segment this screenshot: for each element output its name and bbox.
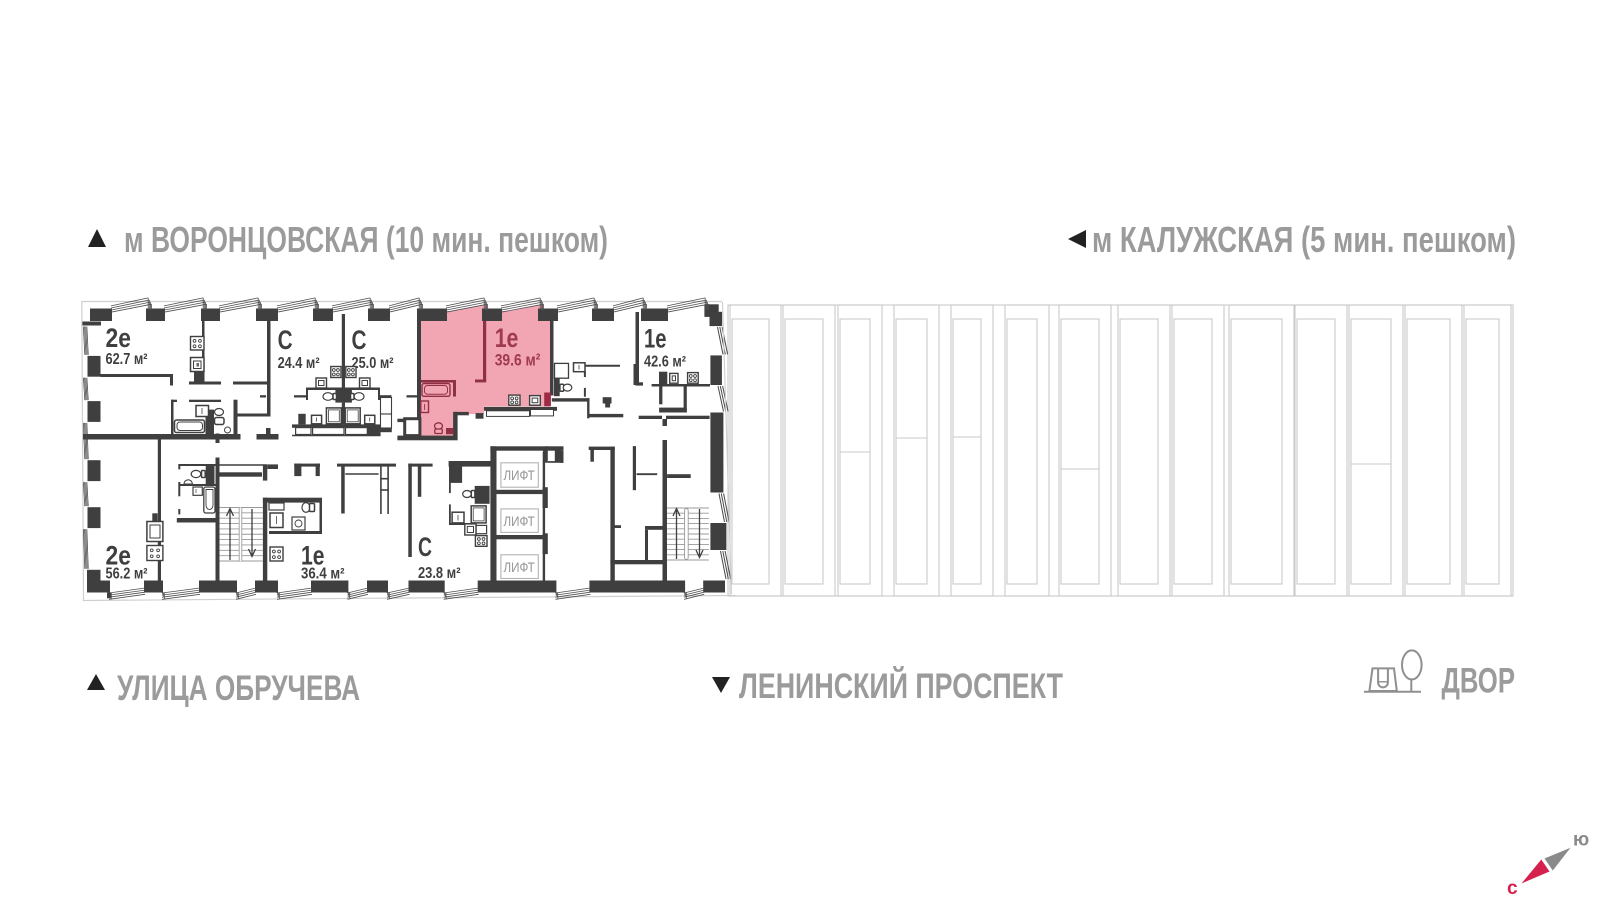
- svg-text:24.4 м²: 24.4 м²: [278, 355, 320, 372]
- svg-text:с: с: [1507, 878, 1518, 899]
- svg-text:2е: 2е: [106, 323, 131, 353]
- svg-text:1е: 1е: [495, 323, 519, 353]
- svg-text:36.4 м²: 36.4 м²: [301, 566, 345, 583]
- svg-text:С: С: [418, 532, 432, 562]
- svg-text:39.6 м²: 39.6 м²: [495, 352, 541, 370]
- svg-text:С: С: [278, 325, 293, 355]
- svg-text:ЛИФТ: ЛИФТ: [504, 514, 535, 529]
- svg-text:42.6 м²: 42.6 м²: [644, 354, 686, 371]
- svg-text:23.8 м²: 23.8 м²: [418, 565, 461, 582]
- svg-text:ЛЕНИНСКИЙ ПРОСПЕКТ: ЛЕНИНСКИЙ ПРОСПЕКТ: [739, 666, 1063, 706]
- svg-text:м КАЛУЖСКАЯ (5 мин. пешком): м КАЛУЖСКАЯ (5 мин. пешком): [1092, 219, 1516, 260]
- svg-text:С: С: [352, 325, 367, 355]
- svg-text:1е: 1е: [644, 324, 667, 354]
- svg-text:м ВОРОНЦОВСКАЯ (10 мин. пешко: м ВОРОНЦОВСКАЯ (10 мин. пешком): [124, 219, 608, 260]
- svg-text:56.2 м²: 56.2 м²: [106, 566, 148, 583]
- svg-text:25.0 м²: 25.0 м²: [352, 355, 394, 372]
- svg-text:ЛИФТ: ЛИФТ: [504, 560, 535, 575]
- svg-text:ДВОР: ДВОР: [1442, 662, 1516, 701]
- svg-text:ю: ю: [1573, 830, 1589, 851]
- svg-text:ЛИФТ: ЛИФТ: [504, 468, 535, 483]
- svg-text:62.7 м²: 62.7 м²: [106, 351, 148, 368]
- svg-text:УЛИЦА ОБРУЧЕВА: УЛИЦА ОБРУЧЕВА: [117, 669, 360, 708]
